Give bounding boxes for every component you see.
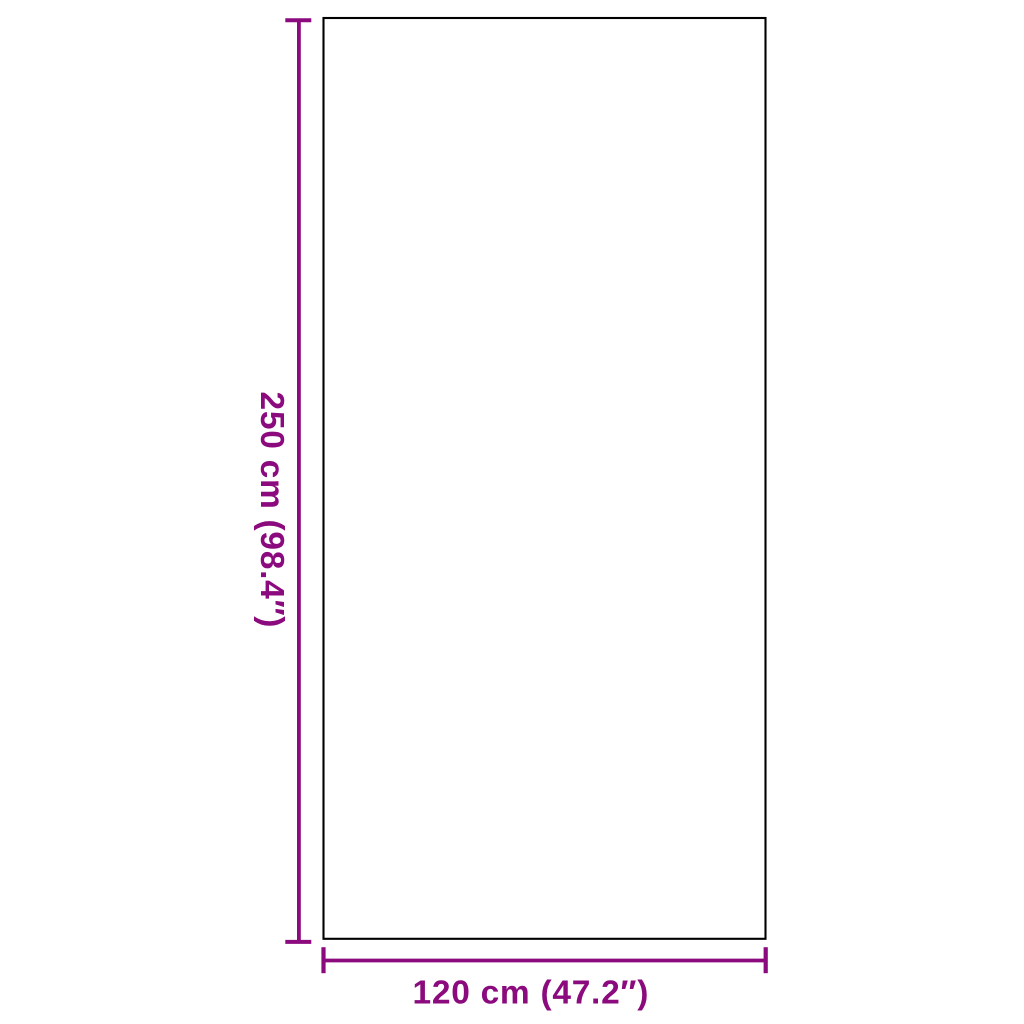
svg-text:250 cm (98.4″): 250 cm (98.4″) xyxy=(253,392,290,629)
svg-text:120 cm (47.2″): 120 cm (47.2″) xyxy=(413,975,650,1012)
